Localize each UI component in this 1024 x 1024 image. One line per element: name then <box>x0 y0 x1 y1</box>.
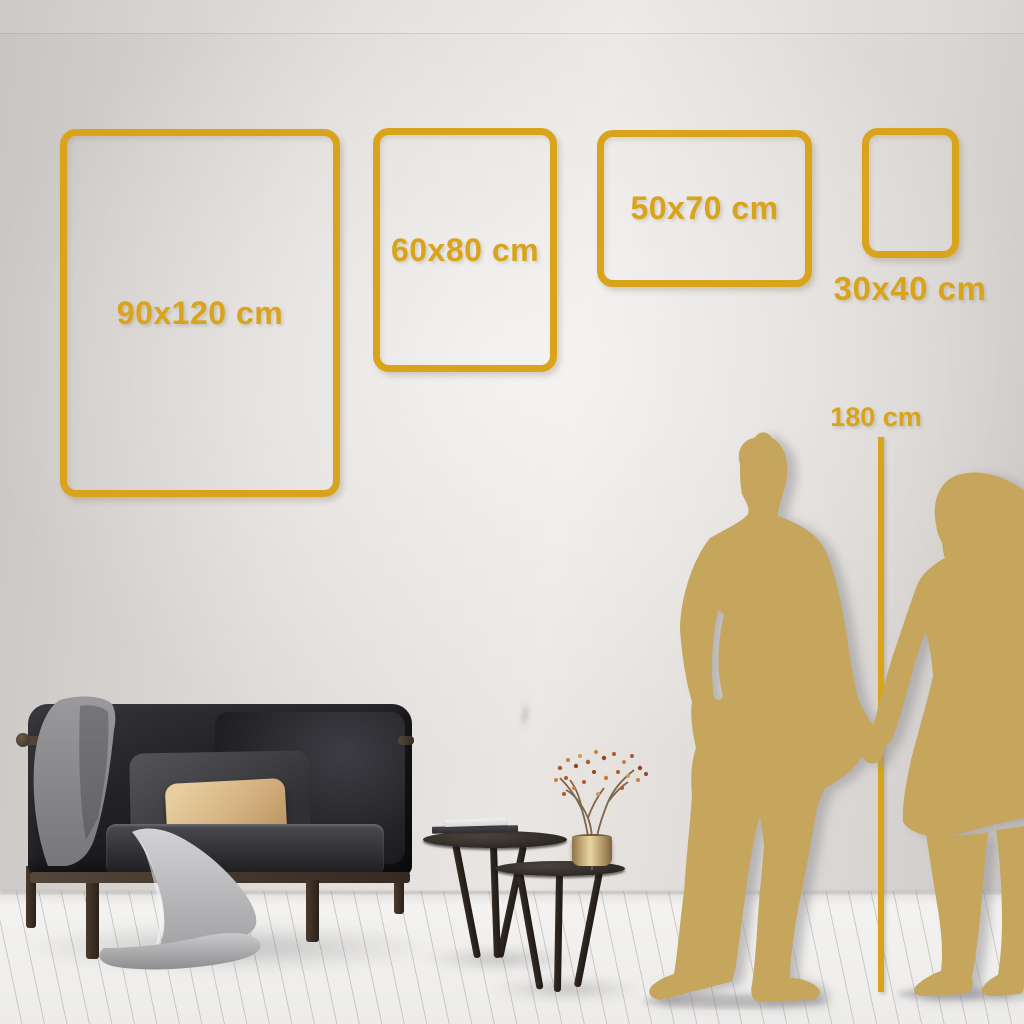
size-frame-90x120: 90x120 cm <box>60 129 340 497</box>
size-slot-30x40: 30x40 cm <box>833 128 987 308</box>
couple-silhouette <box>640 430 1024 1010</box>
height-marker-label: 180 cm <box>816 402 936 433</box>
size-label-90x120: 90x120 cm <box>117 295 283 332</box>
blanket-arm-fold <box>79 705 108 840</box>
ceiling-strip <box>0 0 1024 33</box>
size-frame-30x40 <box>862 128 959 258</box>
sofa-arm-rail <box>398 736 414 745</box>
man-silhouette-icon <box>649 432 884 1002</box>
ceiling-line <box>0 33 1024 34</box>
woman-silhouette-icon <box>873 473 1024 997</box>
size-frame-60x80: 60x80 cm <box>373 128 557 372</box>
size-frame-50x70: 50x70 cm <box>597 130 812 287</box>
gray-blanket <box>20 690 300 980</box>
gold-vase <box>572 836 612 866</box>
berries <box>554 750 648 796</box>
poster-size-guide-scene: 90x120 cm 60x80 cm 50x70 cm 30x40 cm <box>0 0 1024 1024</box>
size-label-30x40: 30x40 cm <box>833 270 987 308</box>
sofa-leg <box>306 880 319 942</box>
size-label-50x70: 50x70 cm <box>630 190 778 227</box>
size-label-60x80: 60x80 cm <box>391 232 539 269</box>
table-shadow <box>492 978 642 1000</box>
